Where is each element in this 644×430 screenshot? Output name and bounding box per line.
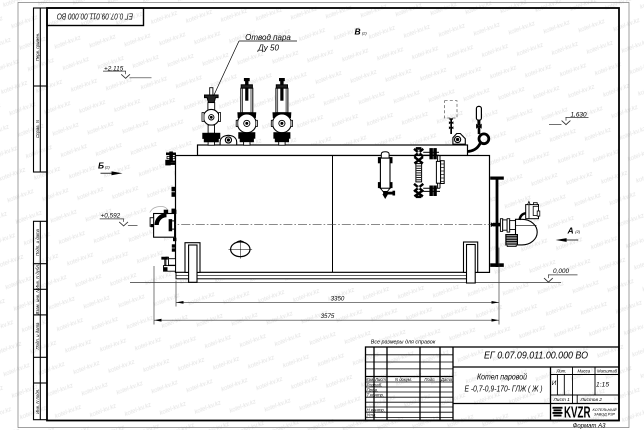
svg-text:Взам. инв. N: Взам. инв. N bbox=[35, 289, 40, 315]
svg-text:ЕГ 0.07.09.011.00.000 ВО: ЕГ 0.07.09.011.00.000 ВО bbox=[484, 351, 588, 362]
svg-text:Листов 2: Листов 2 bbox=[580, 397, 603, 403]
svg-text:КОТЕЛЬНЫЙ: КОТЕЛЬНЫЙ bbox=[593, 408, 617, 412]
svg-text:Котел паровой: Котел паровой bbox=[477, 372, 527, 382]
svg-text:И: И bbox=[552, 380, 557, 387]
svg-text:KVZR: KVZR bbox=[564, 405, 591, 422]
svg-text:(2): (2) bbox=[575, 229, 581, 234]
svg-text:Утв.: Утв. bbox=[367, 413, 377, 418]
svg-text:Масса: Масса bbox=[577, 369, 590, 374]
svg-text:Масштаб: Масштаб bbox=[597, 369, 618, 374]
svg-text:Подп. и дата: Подп. и дата bbox=[35, 228, 40, 256]
svg-text:Лит.: Лит. bbox=[555, 369, 566, 374]
svg-text:ЕГ 0.07.09.011.00.000 ВО: ЕГ 0.07.09.011.00.000 ВО bbox=[57, 12, 133, 21]
svg-text:В: В bbox=[355, 27, 361, 37]
svg-text:Инв. N дубл.: Инв. N дубл. bbox=[35, 264, 40, 289]
svg-text:Справ. N: Справ. N bbox=[35, 119, 40, 138]
svg-text:Лист 1: Лист 1 bbox=[553, 397, 571, 403]
svg-text:1:15: 1:15 bbox=[596, 382, 609, 389]
svg-text:3575: 3575 bbox=[321, 313, 335, 320]
svg-text:+0,592: +0,592 bbox=[101, 213, 121, 220]
svg-text:Лист: Лист bbox=[374, 377, 386, 382]
svg-text:Инв. N подл.: Инв. N подл. bbox=[35, 389, 40, 414]
svg-text:Дата: Дата bbox=[440, 377, 453, 382]
svg-text:3350: 3350 bbox=[331, 295, 345, 302]
svg-text:Т.контр.: Т.контр. bbox=[367, 393, 385, 398]
svg-text:N докум.: N докум. bbox=[395, 377, 412, 382]
svg-text:Пров.: Пров. bbox=[367, 387, 379, 392]
svg-text:(2): (2) bbox=[362, 30, 368, 35]
svg-text:Подп.: Подп. bbox=[424, 377, 435, 382]
svg-text:Е -0,7-0,9-170- ГЛЖ ( Ж ): Е -0,7-0,9-170- ГЛЖ ( Ж ) bbox=[465, 385, 543, 394]
svg-text:Формат А3: Формат А3 bbox=[573, 423, 606, 429]
svg-text:(2): (2) bbox=[105, 164, 111, 169]
svg-text:Ду 50: Ду 50 bbox=[257, 44, 279, 53]
svg-text:Перв. примен.: Перв. примен. bbox=[35, 33, 40, 62]
svg-text:ЗАВОД РЗР: ЗАВОД РЗР bbox=[594, 413, 616, 417]
svg-text:1,630: 1,630 bbox=[571, 112, 587, 119]
svg-text:Все размеры для справок: Все размеры для справок bbox=[371, 340, 436, 346]
svg-text:А: А bbox=[567, 226, 574, 236]
svg-text:0,000: 0,000 bbox=[553, 268, 569, 275]
svg-text:Изм.: Изм. bbox=[365, 377, 374, 382]
svg-text:Б: Б bbox=[98, 161, 104, 171]
svg-text:Подп. и дата: Подп. и дата bbox=[35, 322, 40, 350]
svg-text:+2,115: +2,115 bbox=[104, 65, 124, 72]
